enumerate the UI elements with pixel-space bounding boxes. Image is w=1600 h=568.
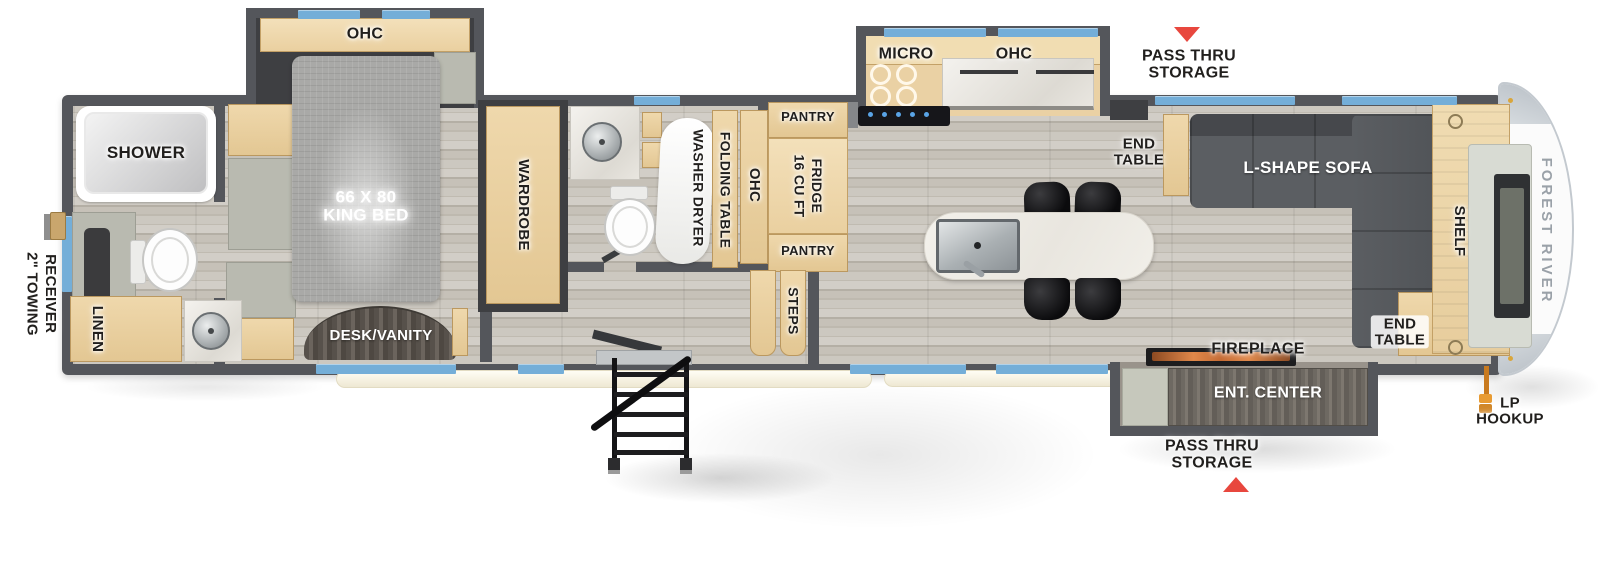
step-rung bbox=[614, 412, 688, 417]
pass-thru-top-line1: PASS THRU bbox=[1142, 48, 1236, 65]
shelf-knob-icon bbox=[1448, 340, 1463, 355]
fridge-line1: 16 CU FT bbox=[792, 154, 807, 217]
pass-thru-top-line2: STORAGE bbox=[1142, 65, 1236, 82]
ent-center-label: ENT. CENTER bbox=[1214, 386, 1322, 403]
wardrobe-label: WARDROBE bbox=[515, 159, 531, 251]
range-flame-icon bbox=[868, 112, 873, 117]
window bbox=[884, 28, 986, 37]
shower-label: SHOWER bbox=[107, 144, 185, 162]
window bbox=[850, 364, 966, 374]
cooktop-burner-icon bbox=[896, 64, 917, 85]
step-foot bbox=[680, 458, 692, 474]
window bbox=[382, 10, 430, 19]
sink-drain-icon bbox=[599, 139, 605, 145]
end-table-top-label: END TABLE bbox=[1114, 136, 1164, 167]
fridge-label: 16 CU FT FRIDGE bbox=[792, 154, 824, 217]
linen-label: LINEN bbox=[89, 306, 105, 353]
pass-thru-arrow-up-icon bbox=[1223, 477, 1249, 492]
island-chair bbox=[1075, 278, 1121, 320]
desk-vanity-label: DESK/VANITY bbox=[329, 328, 432, 344]
desk-side-cabinet bbox=[452, 308, 468, 356]
window bbox=[1342, 96, 1457, 105]
end-table-top-line1: END bbox=[1114, 136, 1164, 152]
lp-line2: HOOKUP bbox=[1476, 411, 1544, 427]
step-rung bbox=[614, 432, 688, 437]
end-table-bottom-label: END TABLE bbox=[1371, 315, 1429, 348]
pass-thru-bottom-label: PASS THRU STORAGE bbox=[1165, 438, 1259, 471]
cabinet-handle bbox=[960, 70, 1018, 74]
fridge-line2: FRIDGE bbox=[810, 159, 825, 214]
cabinet-handle bbox=[1036, 70, 1094, 74]
bedroom-ohc-label: OHC bbox=[347, 27, 383, 44]
window bbox=[1155, 96, 1295, 105]
pass-thru-top-label: PASS THRU STORAGE bbox=[1142, 48, 1236, 81]
sink-drain-icon bbox=[974, 242, 981, 249]
bedroom-slide-panel bbox=[434, 52, 476, 104]
bed-size-line1: 66 X 80 bbox=[323, 188, 409, 206]
kitchen-counter bbox=[942, 58, 1094, 110]
ground-shadow bbox=[80, 372, 330, 402]
sofa-label: L-SHAPE SOFA bbox=[1243, 159, 1372, 177]
end-table-top-line2: TABLE bbox=[1114, 152, 1164, 168]
washer-dryer-label: WASHER DRYER bbox=[691, 129, 706, 246]
fireplace-label: FIREPLACE bbox=[1211, 342, 1304, 359]
cooktop-burner-icon bbox=[870, 64, 891, 85]
step-rung bbox=[614, 450, 688, 455]
window bbox=[998, 28, 1098, 37]
shelf-knob-icon bbox=[1448, 114, 1463, 129]
towing-receiver-label: 2" TOWING RECEIVER bbox=[24, 252, 58, 336]
cap-screw-icon bbox=[1560, 336, 1565, 341]
window bbox=[996, 364, 1108, 374]
toilet-seat bbox=[151, 237, 189, 283]
cooktop-burner-icon bbox=[896, 86, 917, 107]
end-table-top bbox=[1163, 114, 1189, 196]
end-table-bottom-line2: TABLE bbox=[1375, 332, 1425, 348]
shelf-label: SHELF bbox=[1451, 206, 1467, 257]
toilet-seat bbox=[612, 206, 648, 248]
cap-screw-icon bbox=[1508, 98, 1513, 103]
pass-thru-arrow-down-icon bbox=[1174, 27, 1200, 42]
interior-wall bbox=[808, 262, 819, 364]
pass-thru-bottom-line1: PASS THRU bbox=[1165, 438, 1259, 455]
step-rung bbox=[614, 372, 688, 377]
sink-drain-icon bbox=[208, 328, 214, 334]
towing-line1: 2" TOWING bbox=[24, 252, 40, 336]
micro-label: MICRO bbox=[879, 47, 934, 64]
towing-line2: RECEIVER bbox=[43, 254, 59, 333]
midbath-ohc-label: OHC bbox=[746, 168, 762, 202]
brand-text: FOREST RIVER bbox=[1538, 158, 1554, 305]
bath-corner-cabinet bbox=[228, 104, 300, 156]
tv-screen bbox=[1500, 188, 1524, 304]
counter-end-cabinet bbox=[1110, 100, 1148, 120]
window bbox=[298, 10, 360, 19]
towing-receiver-knob bbox=[50, 212, 66, 240]
step-rung bbox=[614, 392, 688, 397]
lp-line1: LP bbox=[1476, 395, 1544, 411]
cooktop-burner-icon bbox=[870, 86, 891, 107]
window bbox=[634, 96, 680, 105]
pass-thru-bottom-line2: STORAGE bbox=[1165, 455, 1259, 472]
king-bed bbox=[292, 56, 440, 302]
pantry-top-label: PANTRY bbox=[781, 110, 835, 124]
folding-table-label: FOLDING TABLE bbox=[718, 132, 733, 248]
bed-size-label: 66 X 80 KING BED bbox=[323, 188, 409, 223]
steps-label: STEPS bbox=[786, 287, 801, 334]
bath-closet-panel bbox=[228, 158, 300, 250]
cap-screw-icon bbox=[1508, 356, 1513, 361]
pantry-bottom-label: PANTRY bbox=[781, 244, 835, 258]
bed-size-line2: KING BED bbox=[323, 206, 409, 224]
step-foot bbox=[608, 458, 620, 474]
window bbox=[518, 364, 564, 374]
end-table-bottom-line1: END bbox=[1375, 316, 1425, 332]
interior-step bbox=[750, 270, 776, 356]
midbath-drawer bbox=[642, 112, 662, 138]
entry-steps bbox=[586, 352, 716, 482]
window bbox=[316, 364, 456, 374]
lp-hookup-label: LP HOOKUP bbox=[1476, 395, 1544, 426]
cap-screw-icon bbox=[1560, 118, 1565, 123]
ground-shadow bbox=[660, 380, 1100, 530]
island-chair bbox=[1024, 278, 1070, 320]
linen-cabinet bbox=[70, 296, 182, 362]
ent-slide-panel bbox=[1122, 368, 1168, 426]
floorplan-canvas: FOREST RIVER bbox=[0, 0, 1600, 568]
kitchen-ohc-label: OHC bbox=[996, 47, 1032, 64]
